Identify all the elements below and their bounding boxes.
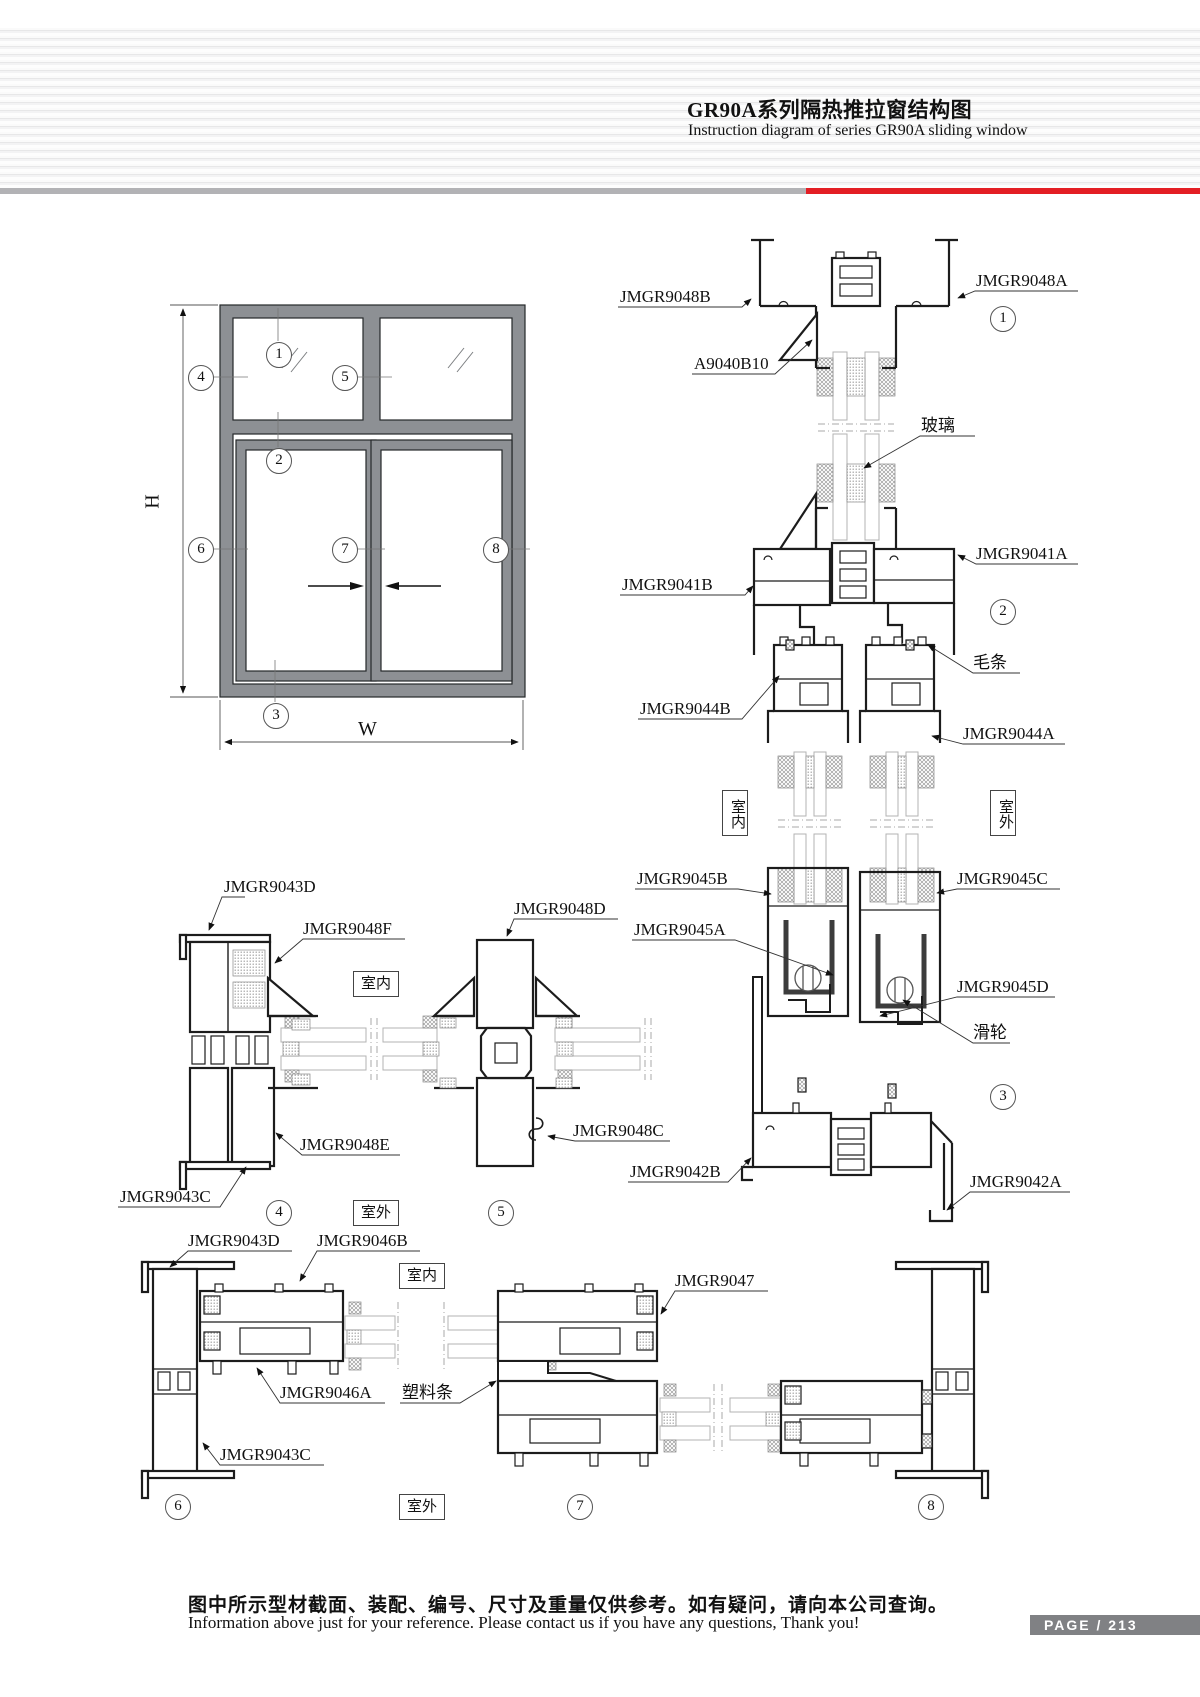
label-jmgr9042b: JMGR9042B [630, 1162, 721, 1181]
label-a9040b10: A9040B10 [694, 354, 769, 373]
dim-height-label: H [142, 494, 165, 508]
indoor-box-vertical: 室内 [722, 790, 748, 836]
elevation-callout-3: 3 [263, 703, 289, 729]
section-callout-3: 3 [990, 1084, 1016, 1110]
indoor-box-bottom: 室内 [399, 1263, 445, 1289]
elevation-callout-4: 4 [188, 365, 214, 391]
label-jmgr9047: JMGR9047 [675, 1271, 754, 1290]
label-jmgr9044b: JMGR9044B [640, 699, 731, 718]
elevation-callout-6: 6 [188, 537, 214, 563]
label-plastic-strip: 塑料条 [402, 1383, 453, 1402]
label-jmgr9046b: JMGR9046B [317, 1231, 408, 1250]
elevation-callout-1: 1 [266, 342, 292, 368]
label-jmgr9044a: JMGR9044A [963, 724, 1055, 743]
label-jmgr9045c: JMGR9045C [957, 869, 1048, 888]
label-jmgr9048c: JMGR9048C [573, 1121, 664, 1140]
section-callout-4: 4 [266, 1200, 292, 1226]
outdoor-box-bottom: 室外 [399, 1494, 445, 1520]
page-number-badge: PAGE / 213 [1030, 1615, 1200, 1635]
outdoor-box-mid: 室外 [353, 1200, 399, 1226]
label-jmgr9043c-mid: JMGR9043C [120, 1187, 211, 1206]
label-jmgr9046a: JMGR9046A [280, 1383, 372, 1402]
label-wool: 毛条 [973, 653, 1007, 672]
label-jmgr9041b: JMGR9041B [622, 575, 713, 594]
label-jmgr9048a: JMGR9048A [976, 271, 1068, 290]
label-glass: 玻璃 [921, 416, 955, 435]
section-callout-6: 6 [165, 1494, 191, 1520]
section-callout-5: 5 [488, 1200, 514, 1226]
label-jmgr9043d-bottom: JMGR9043D [188, 1231, 280, 1250]
label-jmgr9041a: JMGR9041A [976, 544, 1068, 563]
label-jmgr9045d: JMGR9045D [957, 977, 1049, 996]
dim-width-label: W [358, 718, 377, 741]
catalog-page: GR90A系列隔热推拉窗结构图 Instruction diagram of s… [0, 0, 1200, 1697]
section-callout-1: 1 [990, 306, 1016, 332]
label-roller: 滑轮 [973, 1023, 1007, 1042]
label-jmgr9048d: JMGR9048D [514, 899, 606, 918]
label-jmgr9042a: JMGR9042A [970, 1172, 1062, 1191]
label-jmgr9043c-bottom: JMGR9043C [220, 1445, 311, 1464]
elevation-callout-8: 8 [483, 537, 509, 563]
outdoor-box-vertical: 室外 [990, 790, 1016, 836]
elevation-callout-5: 5 [332, 365, 358, 391]
label-jmgr9048e: JMGR9048E [300, 1135, 390, 1154]
label-jmgr9043d-mid: JMGR9043D [224, 877, 316, 896]
label-jmgr9045b: JMGR9045B [637, 869, 728, 888]
section-callout-8: 8 [918, 1494, 944, 1520]
section-callout-2: 2 [990, 599, 1016, 625]
diagram-canvas [0, 0, 1200, 1697]
section-callout-7: 7 [567, 1494, 593, 1520]
label-jmgr9048b: JMGR9048B [620, 287, 711, 306]
label-jmgr9048f: JMGR9048F [303, 919, 392, 938]
label-jmgr9045a: JMGR9045A [634, 920, 726, 939]
elevation-callout-7: 7 [332, 537, 358, 563]
footer-note-en: Information above just for your referenc… [188, 1613, 859, 1633]
elevation-callout-2: 2 [266, 448, 292, 474]
indoor-box-mid: 室内 [353, 971, 399, 997]
